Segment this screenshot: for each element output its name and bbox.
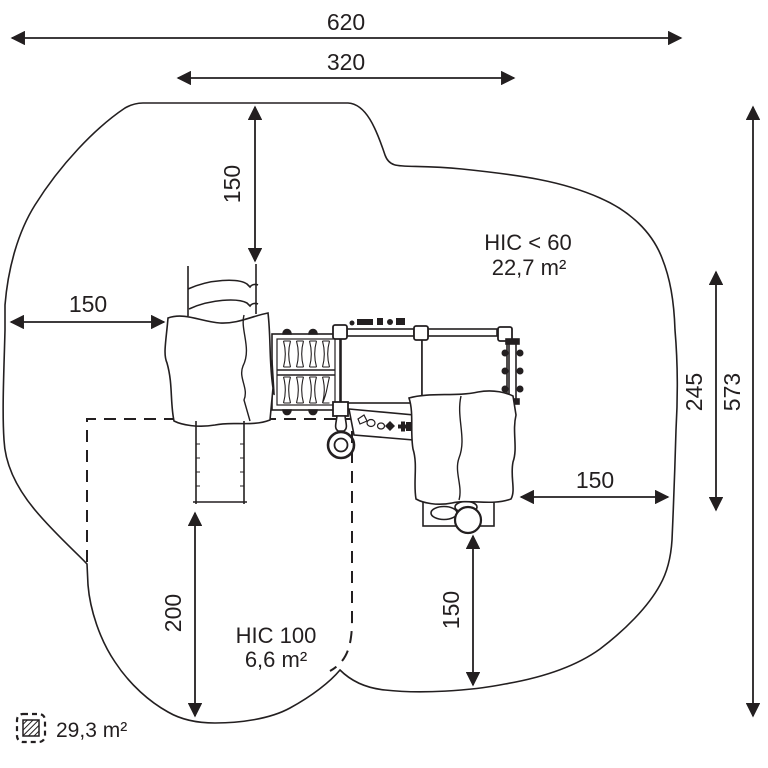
- hatched-area-legend-fill: [23, 720, 39, 736]
- dim-inner-width-label: 320: [327, 49, 365, 75]
- dim-right-clearance-label: 150: [576, 467, 614, 493]
- hic100-title: HIC 100: [236, 623, 317, 648]
- dim-total-height: 573: [719, 107, 753, 716]
- hic60-area: 22,7 m²: [492, 255, 567, 280]
- climbing-boulder-right-icon: [409, 391, 516, 504]
- plan-drawing: 620 320 150 150 245 573 150 150: [0, 0, 768, 768]
- dim-total-height-label: 573: [719, 373, 745, 411]
- platform-deck-icon: [333, 318, 512, 403]
- dim-top-clearance-label: 150: [219, 165, 245, 203]
- hic100-area: 6,6 m²: [245, 647, 307, 672]
- dim-total-width-label: 620: [327, 9, 365, 35]
- dim-inner-width: 320: [178, 49, 514, 78]
- play-panel-icon: [349, 409, 415, 440]
- dim-right-inner-height-label: 245: [681, 373, 707, 411]
- legend-total-area-label: 29,3 m²: [56, 719, 127, 742]
- dim-total-width: 620: [12, 9, 681, 38]
- plan-svg: 620 320 150 150 245 573 150 150: [0, 0, 768, 768]
- hic60-title: HIC < 60: [484, 230, 571, 255]
- dim-slide-runout-label: 200: [160, 594, 186, 632]
- dim-left-clearance-label: 150: [69, 291, 107, 317]
- climbing-boulder-left-icon: [165, 313, 273, 426]
- legend: 29,3 m²: [17, 714, 127, 742]
- dim-right-inner-height: 245: [681, 272, 716, 510]
- dim-bottom-clearance-label: 150: [438, 591, 464, 629]
